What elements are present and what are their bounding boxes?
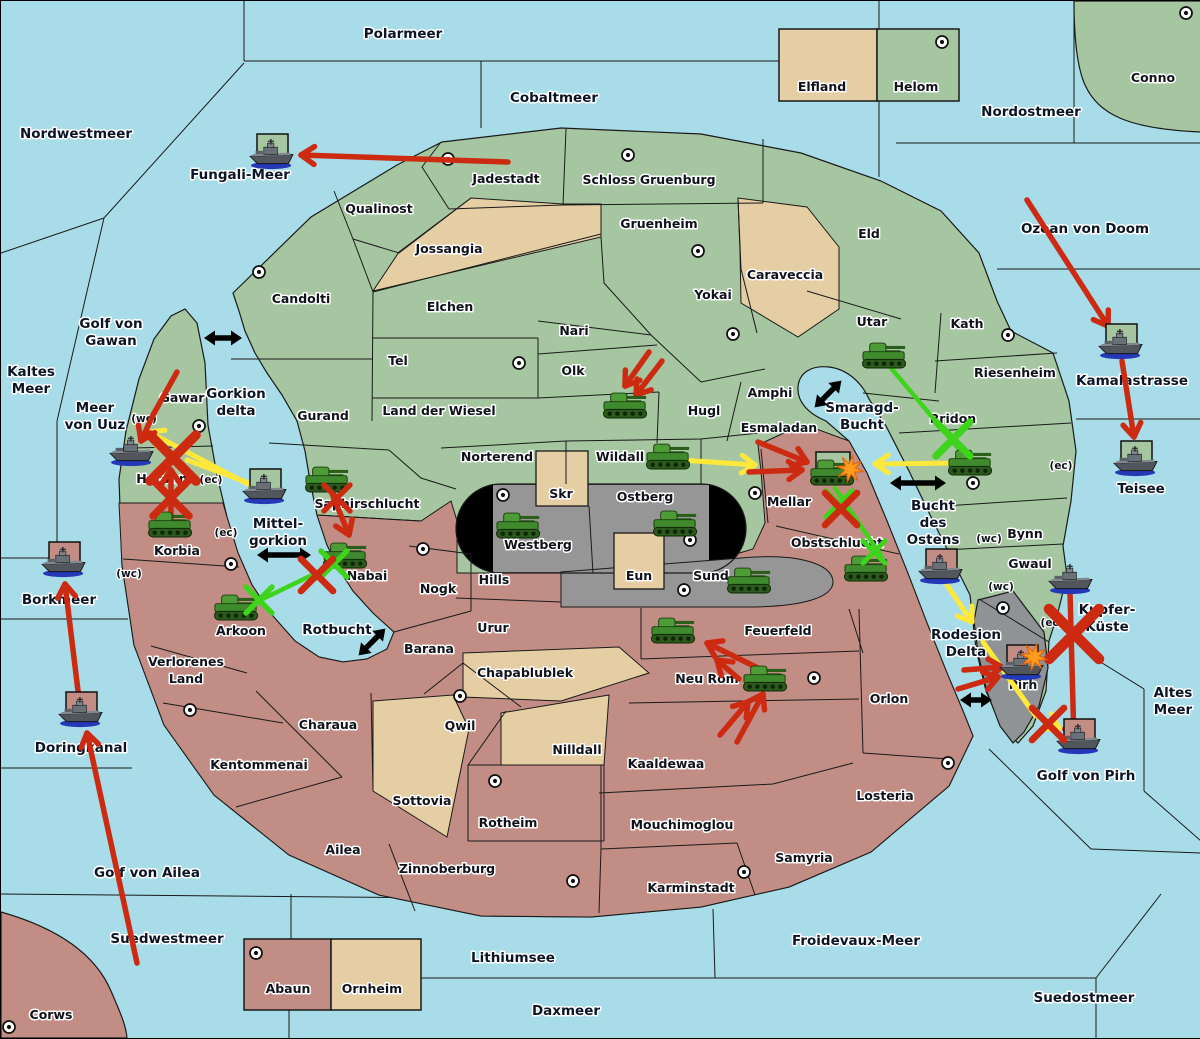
coast-label-ec: (ec) — [200, 474, 223, 486]
ship-unit[interactable] — [250, 134, 293, 169]
region-label-polarmeer[interactable]: Polarmeer — [364, 26, 443, 42]
region-label-norterend[interactable]: Norterend — [461, 449, 533, 464]
city-dot — [489, 775, 501, 787]
region-label-feuerfeld[interactable]: Feuerfeld — [744, 623, 811, 638]
city-dot — [942, 757, 954, 769]
city-dot — [225, 558, 237, 570]
region-label-hugl[interactable]: Hugl — [688, 403, 721, 418]
city-dot — [1002, 329, 1014, 341]
region-label-samyria[interactable]: Samyria — [775, 850, 833, 865]
city-dot — [936, 36, 948, 48]
region-label-nordostmeer[interactable]: Nordostmeer — [981, 104, 1081, 120]
region-label-korbia[interactable]: Korbia — [154, 543, 200, 558]
region-label-nabai[interactable]: Nabai — [347, 568, 388, 583]
region-label-skr[interactable]: Skr — [549, 486, 573, 501]
city-dot — [808, 672, 820, 684]
region-label-abaun[interactable]: Abaun — [266, 981, 311, 996]
region-label-sottovia[interactable]: Sottovia — [393, 793, 452, 808]
city-dot — [497, 489, 509, 501]
region-label-losteria[interactable]: Losteria — [856, 788, 913, 803]
region-label-qualinost[interactable]: Qualinost — [345, 201, 412, 216]
region-label-golf-von-ailea[interactable]: Golf von Ailea — [94, 865, 200, 881]
region-ornheim-box[interactable] — [331, 939, 421, 1010]
region-label-nari[interactable]: Nari — [559, 323, 588, 338]
region-label-caraveccia[interactable]: Caraveccia — [747, 267, 823, 282]
region-label-schloss-gruenburg[interactable]: Schloss Gruenburg — [582, 172, 715, 187]
region-label-kentommenai[interactable]: Kentommenai — [210, 757, 308, 772]
city-dot — [1180, 7, 1192, 19]
city-dot — [738, 866, 750, 878]
region-label-mouchimoglou[interactable]: Mouchimoglou — [631, 817, 734, 832]
region-label-land-der-wiesel[interactable]: Land der Wiesel — [382, 403, 495, 418]
region-label-jossangia[interactable]: Jossangia — [414, 241, 482, 256]
region-label-daxmeer[interactable]: Daxmeer — [532, 1003, 600, 1019]
ship-unit[interactable] — [1114, 441, 1157, 476]
ship-unit[interactable] — [42, 542, 85, 577]
region-label-charaua[interactable]: Charaua — [299, 717, 357, 732]
coast-label-wc: (wc) — [976, 533, 1002, 545]
region-label-candolti[interactable]: Candolti — [272, 291, 331, 306]
region-label-rotheim[interactable]: Rotheim — [479, 815, 538, 830]
city-dot — [193, 420, 205, 432]
region-label-mellar[interactable]: Mellar — [767, 494, 812, 509]
coast-label-ec: (ec) — [215, 527, 238, 539]
region-label-westberg[interactable]: Westberg — [504, 537, 572, 552]
region-label-ailea[interactable]: Ailea — [325, 842, 360, 857]
region-label-esmaladan[interactable]: Esmaladan — [741, 420, 817, 435]
region-label-orlon[interactable]: Orlon — [870, 691, 909, 706]
city-dot — [417, 543, 429, 555]
region-label-corws[interactable]: Corws — [30, 1007, 73, 1022]
ship-unit[interactable] — [919, 549, 962, 584]
region-label-kaltes-meer[interactable]: KaltesMeer — [7, 364, 55, 397]
city-dot — [184, 704, 196, 716]
region-label-eun[interactable]: Eun — [626, 568, 652, 583]
region-label-suedwestmeer[interactable]: Suedwestmeer — [110, 931, 224, 947]
city-dot — [567, 875, 579, 887]
region-label-nogk[interactable]: Nogk — [420, 581, 457, 596]
region-label-chapablublek[interactable]: Chapablublek — [477, 665, 574, 680]
region-label-nordwestmeer[interactable]: Nordwestmeer — [20, 126, 132, 142]
region-label-ostberg[interactable]: Ostberg — [617, 489, 674, 504]
region-label-fungali-meer[interactable]: Fungali-Meer — [190, 167, 290, 183]
coast-label-wc: (wc) — [988, 581, 1014, 593]
region-label-altes-meer[interactable]: AltesMeer — [1154, 685, 1193, 718]
region-label-elfland[interactable]: Elfland — [798, 79, 846, 94]
region-label-bynn[interactable]: Bynn — [1007, 526, 1042, 541]
region-label-amphi[interactable]: Amphi — [748, 385, 793, 400]
region-label-wildall[interactable]: Wildall — [596, 449, 644, 464]
city-dot — [749, 487, 761, 499]
ship-unit[interactable] — [59, 692, 102, 727]
ship-unit[interactable] — [243, 469, 286, 504]
city-dot — [727, 328, 739, 340]
coast-label-wc: (wc) — [116, 568, 142, 580]
city-dot — [3, 1021, 15, 1033]
city-dot — [454, 690, 466, 702]
region-label-barana[interactable]: Barana — [404, 641, 454, 656]
city-dot — [967, 477, 979, 489]
region-label-gurand[interactable]: Gurand — [297, 408, 349, 423]
region-label-sund[interactable]: Sund — [693, 568, 729, 583]
region-label-qwil[interactable]: Qwil — [445, 718, 476, 733]
region-label-conno[interactable]: Conno — [1131, 70, 1176, 85]
city-dot — [250, 947, 262, 959]
region-label-olk[interactable]: Olk — [561, 363, 585, 378]
region-label-utar[interactable]: Utar — [857, 314, 889, 329]
region-label-kamalastrasse[interactable]: Kamalastrasse — [1076, 373, 1188, 389]
region-label-golf-von-pirh[interactable]: Golf von Pirh — [1037, 768, 1136, 784]
region-label-nilldall[interactable]: Nilldall — [552, 742, 601, 757]
region-label-cobaltmeer[interactable]: Cobaltmeer — [510, 90, 598, 106]
region-label-rotbucht[interactable]: Rotbucht — [302, 622, 372, 638]
city-dot — [253, 266, 265, 278]
region-label-ornheim[interactable]: Ornheim — [342, 981, 402, 996]
region-label-kaaldewaa[interactable]: Kaaldewaa — [628, 756, 705, 771]
region-label-froidevaux-meer[interactable]: Froidevaux-Meer — [792, 933, 920, 949]
region-label-jadestadt[interactable]: Jadestadt — [471, 171, 539, 186]
region-label-zinnoberburg[interactable]: Zinnoberburg — [399, 861, 495, 876]
region-label-arkoon[interactable]: Arkoon — [216, 623, 266, 638]
city-dot — [513, 357, 525, 369]
region-label-elchen[interactable]: Elchen — [427, 299, 474, 314]
city-dot — [622, 149, 634, 161]
region-label-tel[interactable]: Tel — [388, 353, 408, 368]
region-label-mittel-gorkion[interactable]: Mittel-gorkion — [249, 516, 307, 549]
region-label-riesenheim[interactable]: Riesenheim — [974, 365, 1056, 380]
region-label-karminstadt[interactable]: Karminstadt — [647, 880, 734, 895]
wargame-map: PolarmeerNordwestmeerCobaltmeerNordostme… — [0, 0, 1200, 1039]
region-label-gwaul[interactable]: Gwaul — [1008, 556, 1051, 571]
coast-label-ec: (ec) — [1050, 460, 1073, 472]
region-label-gruenheim[interactable]: Gruenheim — [620, 216, 697, 231]
city-dot — [997, 602, 1009, 614]
region-label-hills[interactable]: Hills — [479, 572, 510, 587]
region-label-helom[interactable]: Helom — [894, 79, 939, 94]
region-label-lithiumsee[interactable]: Lithiumsee — [471, 950, 555, 966]
city-dot — [678, 584, 690, 596]
region-label-teisee[interactable]: Teisee — [1117, 481, 1165, 497]
region-label-eld[interactable]: Eld — [858, 226, 880, 241]
region-label-golf-von-gawan[interactable]: Golf vonGawan — [79, 316, 142, 349]
region-label-urur[interactable]: Urur — [477, 620, 509, 635]
region-label-yokai[interactable]: Yokai — [693, 287, 732, 302]
city-dot — [692, 245, 704, 257]
ship-unit[interactable] — [1099, 324, 1142, 359]
region-label-kath[interactable]: Kath — [951, 316, 984, 331]
region-label-suedostmeer[interactable]: Suedostmeer — [1034, 990, 1135, 1006]
